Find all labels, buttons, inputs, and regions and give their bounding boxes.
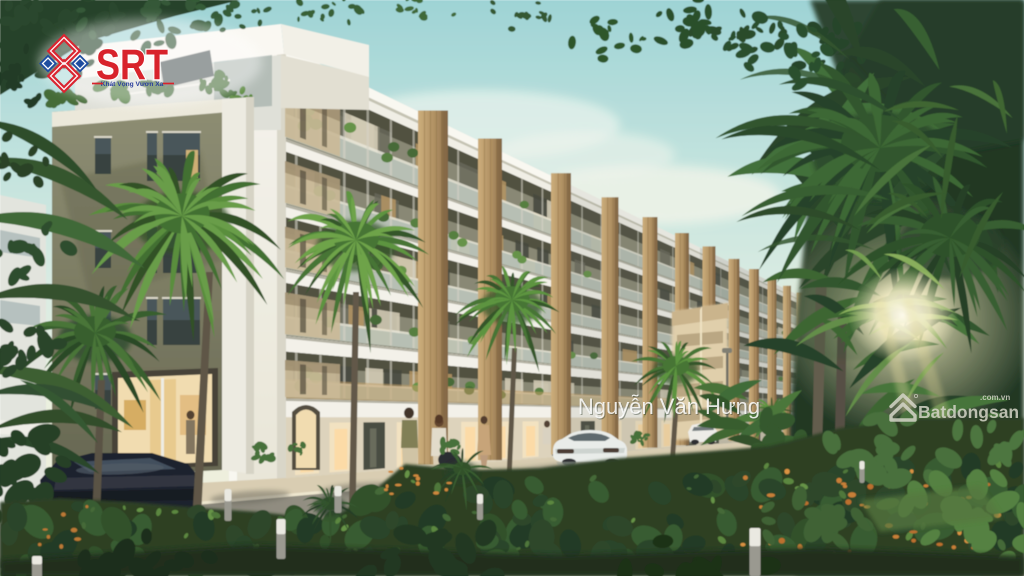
svg-text:Khát Vọng Vươn Xa: Khát Vọng Vươn Xa — [101, 81, 164, 88]
svg-text:.com.vn: .com.vn — [980, 393, 1010, 402]
svg-text:Batdongsan: Batdongsan — [918, 402, 1019, 422]
svg-text:Nguyễn Văn Hưng: Nguyễn Văn Hưng — [578, 394, 760, 419]
